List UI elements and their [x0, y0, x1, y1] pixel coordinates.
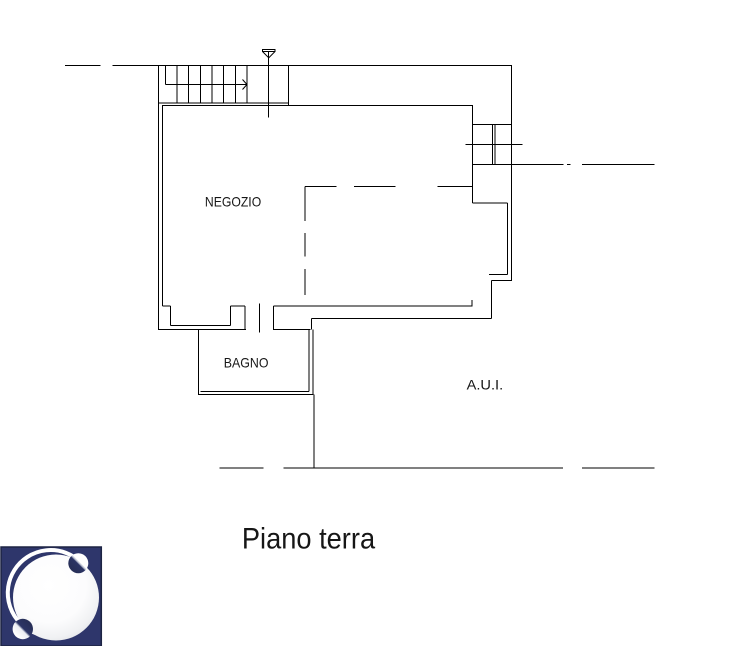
svg-text:NEGOZIO: NEGOZIO [205, 195, 262, 210]
svg-text:A.U.I.: A.U.I. [467, 377, 504, 392]
svg-text:BAGNO: BAGNO [224, 356, 269, 371]
svg-text:Piano terra: Piano terra [242, 522, 376, 555]
